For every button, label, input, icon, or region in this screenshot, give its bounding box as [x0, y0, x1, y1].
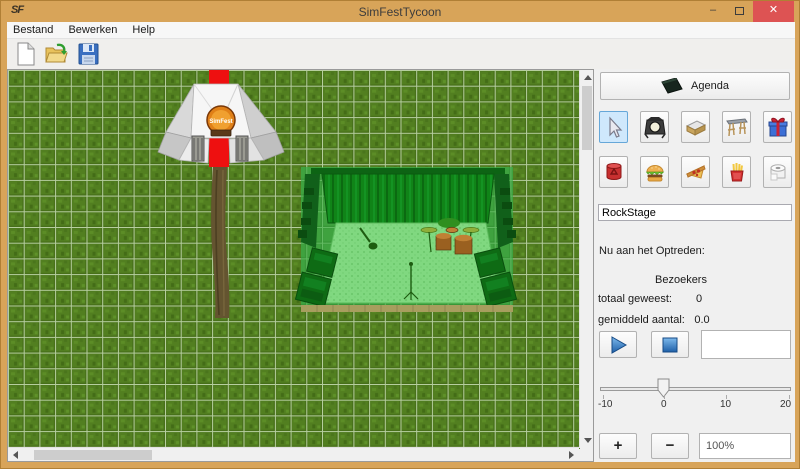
- horizontal-scroll-thumb[interactable]: [34, 450, 152, 460]
- vertical-scrollbar[interactable]: [579, 70, 593, 448]
- stage-platform-icon: [684, 115, 708, 139]
- tool-toilet-button[interactable]: [763, 156, 792, 188]
- new-file-button[interactable]: [13, 41, 39, 67]
- scroll-down-icon[interactable]: [584, 438, 592, 443]
- tool-row-1: [599, 111, 792, 143]
- scroll-up-icon[interactable]: [584, 75, 592, 80]
- tent-speaker-tower-right: [236, 136, 248, 161]
- pizza-icon: [684, 160, 708, 184]
- app-window: SF SimFestTycoon – ✕ Bestand Bewerken He…: [0, 0, 800, 469]
- toilet-paper-icon: [766, 160, 790, 184]
- menu-bar: Bestand Bewerken Help: [7, 22, 795, 39]
- stop-icon: [661, 336, 679, 354]
- map-canvas-container: SimFest: [7, 69, 594, 462]
- tool-select-button[interactable]: [599, 111, 628, 143]
- tool-row-2: [599, 156, 792, 188]
- maximize-button[interactable]: [727, 1, 751, 22]
- play-button[interactable]: [599, 331, 637, 358]
- slider-label-max: 20: [780, 399, 791, 410]
- tool-gate-button[interactable]: [722, 111, 751, 143]
- tool-fries-button[interactable]: [722, 156, 751, 188]
- maximize-icon: [735, 7, 744, 15]
- zoom-in-button[interactable]: +: [599, 433, 637, 459]
- open-file-button[interactable]: [43, 41, 69, 67]
- open-folder-icon: [44, 42, 68, 66]
- play-icon: [608, 335, 628, 355]
- tool-trash-button[interactable]: [599, 156, 628, 188]
- notebook-icon: [661, 78, 683, 94]
- stage-preview[interactable]: [295, 167, 516, 312]
- total-visitors-value: 0: [684, 293, 714, 305]
- blank-page-icon: [15, 42, 37, 66]
- now-performing-label: Nu aan het Optreden:: [599, 245, 705, 257]
- average-visitors-value: 0.0: [684, 314, 720, 326]
- zoom-level-display: 100%: [699, 433, 791, 459]
- menu-bewerken[interactable]: Bewerken: [62, 22, 123, 36]
- spotlight-icon: [643, 115, 667, 139]
- tool-stage-button[interactable]: [681, 111, 710, 143]
- stop-button[interactable]: [651, 331, 689, 358]
- speed-slider-track[interactable]: [600, 387, 791, 391]
- tool-spotlight-button[interactable]: [640, 111, 669, 143]
- zoom-out-button[interactable]: −: [651, 433, 689, 459]
- save-file-button[interactable]: [75, 41, 101, 67]
- tool-pizza-button[interactable]: [681, 156, 710, 188]
- menu-help[interactable]: Help: [126, 22, 161, 36]
- stage-truss: [311, 168, 505, 174]
- slider-label-10: 10: [720, 399, 731, 410]
- tool-burger-button[interactable]: [640, 156, 669, 188]
- scroll-right-icon[interactable]: [569, 451, 574, 459]
- stage-name-input[interactable]: [598, 204, 792, 221]
- control-panel: Agenda: [596, 69, 795, 462]
- agenda-button[interactable]: Agenda: [600, 72, 790, 100]
- titlebar: SF SimFestTycoon – ✕: [1, 1, 799, 22]
- vertical-scroll-thumb[interactable]: [582, 86, 592, 150]
- close-button[interactable]: ✕: [753, 1, 794, 22]
- window-title: SimFestTycoon: [1, 5, 799, 19]
- simfest-logo: SimFest: [207, 106, 235, 136]
- map-canvas[interactable]: SimFest: [8, 70, 580, 449]
- stage-curtain: [322, 174, 494, 223]
- tent-speaker-tower-left: [192, 136, 204, 161]
- visitors-header: Bezoekers: [626, 274, 736, 286]
- floppy-disk-icon: [77, 42, 99, 66]
- horizontal-scrollbar[interactable]: [8, 447, 579, 461]
- tool-gift-button[interactable]: [763, 111, 792, 143]
- svg-text:SimFest: SimFest: [209, 119, 232, 125]
- gift-icon: [766, 115, 790, 139]
- menu-bestand[interactable]: Bestand: [7, 22, 59, 36]
- window-content: Bestand Bewerken Help: [7, 22, 795, 462]
- scroll-left-icon[interactable]: [13, 451, 18, 459]
- fries-icon: [725, 160, 749, 184]
- agenda-label: Agenda: [691, 80, 729, 92]
- slider-label-0: 0: [661, 399, 667, 410]
- toolbar: [7, 39, 795, 69]
- gate-icon: [725, 115, 749, 139]
- burger-icon: [643, 160, 667, 184]
- trash-can-icon: [602, 160, 626, 184]
- now-playing-display: [701, 330, 791, 359]
- minimize-button[interactable]: –: [701, 1, 725, 22]
- cursor-icon: [602, 115, 626, 139]
- total-visitors-label: totaal geweest:: [598, 293, 672, 305]
- slider-label-min: -10: [598, 399, 612, 410]
- average-visitors-label: gemiddeld aantal:: [598, 314, 685, 326]
